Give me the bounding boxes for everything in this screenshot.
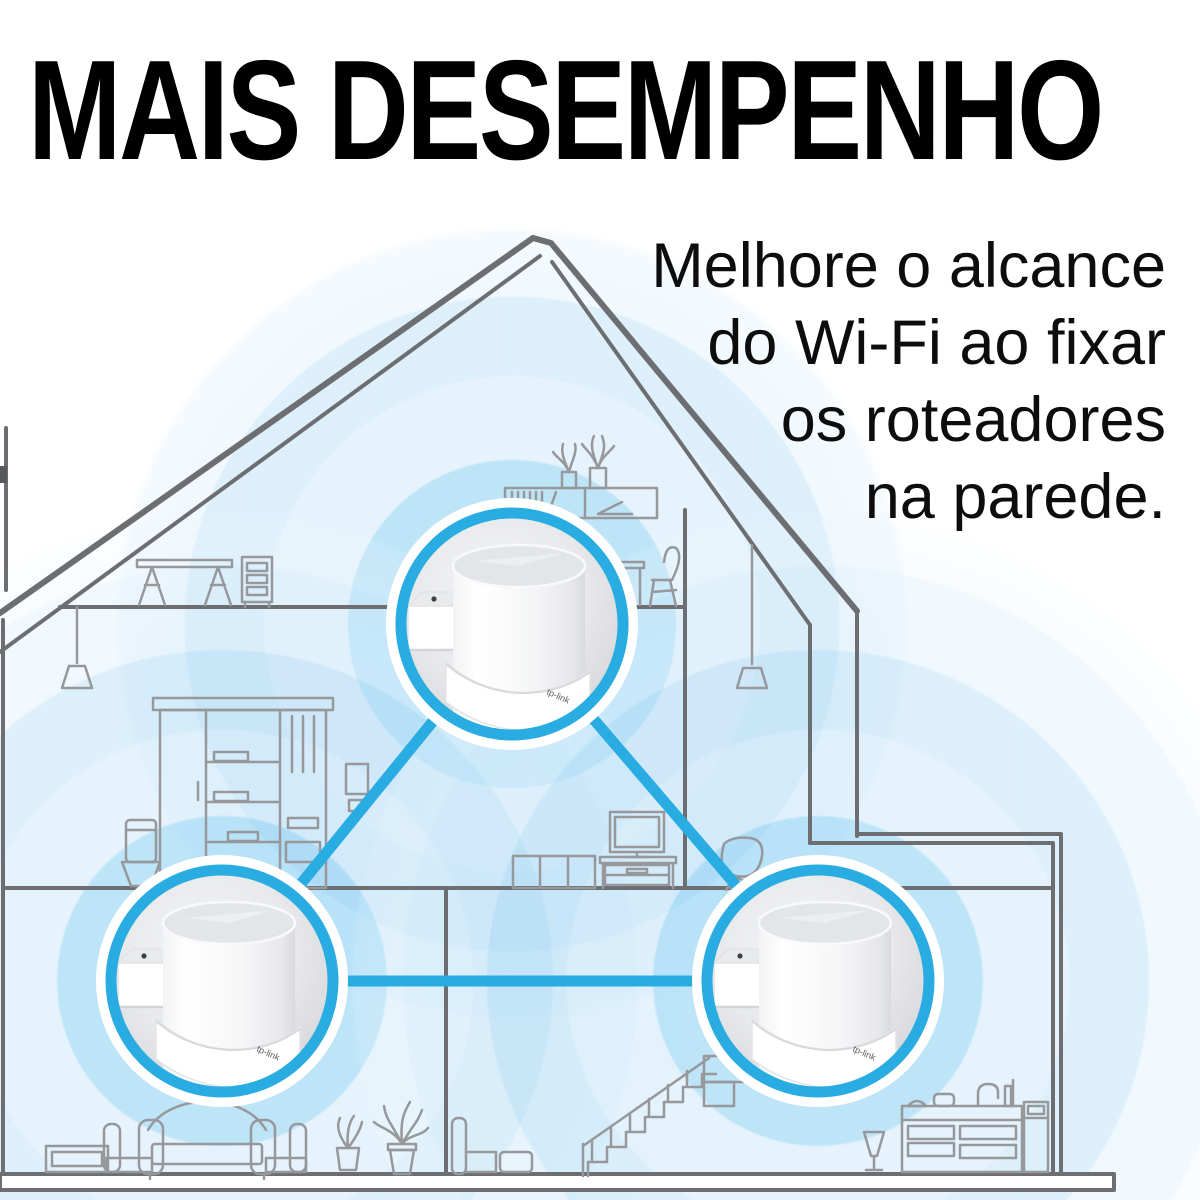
subtitle-line-1: Melhore o alcance: [651, 228, 1166, 305]
marketing-banner: tp-link: [0, 0, 1200, 1200]
subtitle-line-4: na parede.: [651, 459, 1166, 536]
chimney-cap: [0, 466, 7, 483]
subtitle-line-2: do Wi-Fi ao fixar: [651, 305, 1166, 382]
router-callout-top: [391, 503, 633, 745]
subtitle: Melhore o alcance do Wi-Fi ao fixar os r…: [651, 228, 1166, 536]
router-callout-bottom-left: [101, 860, 343, 1102]
router-callout-bottom-right: [697, 860, 939, 1102]
ground-slab: [0, 1174, 1114, 1190]
subtitle-line-3: os roteadores: [651, 382, 1166, 459]
page-title: MAIS DESEMPENHO: [28, 40, 1102, 182]
